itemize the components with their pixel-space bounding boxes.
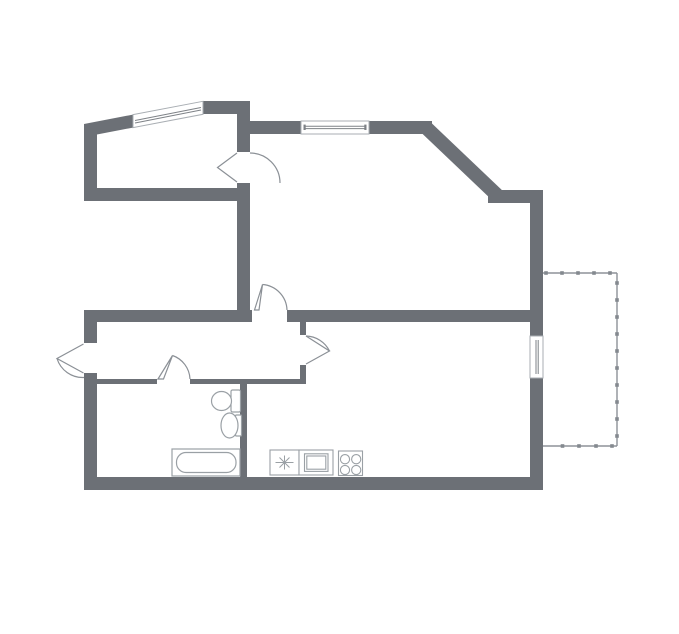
door-living-hall-leaf (255, 285, 263, 311)
wall-room1-right-upper (237, 101, 250, 152)
washbasin-bowl (221, 413, 238, 438)
window-living-tick-right (364, 125, 366, 130)
balcony-post (577, 444, 581, 448)
balcony-post (615, 315, 619, 319)
door-room1-leaf (218, 153, 238, 182)
balcony-post (615, 417, 619, 421)
toilet-tank (231, 390, 241, 412)
stove-burner (352, 465, 361, 474)
balcony-post (610, 444, 614, 448)
balcony-post (561, 444, 565, 448)
wall-right-lower (530, 378, 543, 490)
balcony-post (615, 281, 619, 285)
balcony-railing (543, 271, 619, 448)
oven-inner (307, 456, 326, 469)
balcony-post (615, 332, 619, 336)
window-living-tick-left (304, 125, 306, 130)
door-living-hall-swing-arc (263, 285, 288, 311)
wall-room1-slant (84, 115, 133, 137)
door-bathroom-swing-arc (173, 356, 191, 380)
wall-hall-top-right (287, 310, 543, 322)
wall-kitchen-door-stub-upper (300, 322, 306, 335)
floorplan-canvas (0, 0, 679, 634)
wall-room1-bottom (84, 188, 250, 201)
wall-bath-top-right (190, 379, 306, 384)
balcony-post (592, 271, 596, 275)
wall-left-lower-below-door (84, 373, 97, 490)
stove-burner (340, 465, 349, 474)
doors (57, 153, 330, 379)
floorplan-page (0, 0, 679, 634)
wall-bottom (84, 477, 543, 490)
balcony-post (615, 366, 619, 370)
window-living-top (301, 121, 369, 134)
wall-diagonal (426, 128, 499, 198)
balcony-post (576, 271, 580, 275)
toilet-bowl (212, 392, 232, 411)
stove-burner (352, 455, 361, 464)
door-bathroom-leaf (158, 356, 173, 380)
kitchen-fixtures (270, 450, 363, 476)
balcony-post (615, 298, 619, 302)
balcony-post (615, 383, 619, 387)
wall-kitchen-door-stub-lower (300, 365, 306, 379)
wall-bath-top-left (96, 379, 157, 384)
wall-hall-top-left (84, 310, 252, 322)
wall-room1-right-lower (237, 183, 250, 322)
balcony-post (608, 271, 612, 275)
door-kitchen-leaf (306, 336, 330, 364)
balcony-post (615, 400, 619, 404)
stove-burner (340, 455, 349, 464)
bathroom-fixtures (172, 390, 242, 476)
walls (84, 101, 543, 490)
door-room1-swing-arc (250, 153, 280, 183)
balcony-post (615, 434, 619, 438)
wall-living-top-left (250, 121, 301, 134)
bathtub-inner (177, 453, 237, 473)
balcony-post (560, 271, 564, 275)
balcony-post (594, 444, 598, 448)
door-entrance-leaf (57, 344, 84, 373)
balcony-post (615, 349, 619, 353)
windows (133, 101, 543, 378)
balcony-post (544, 271, 548, 275)
